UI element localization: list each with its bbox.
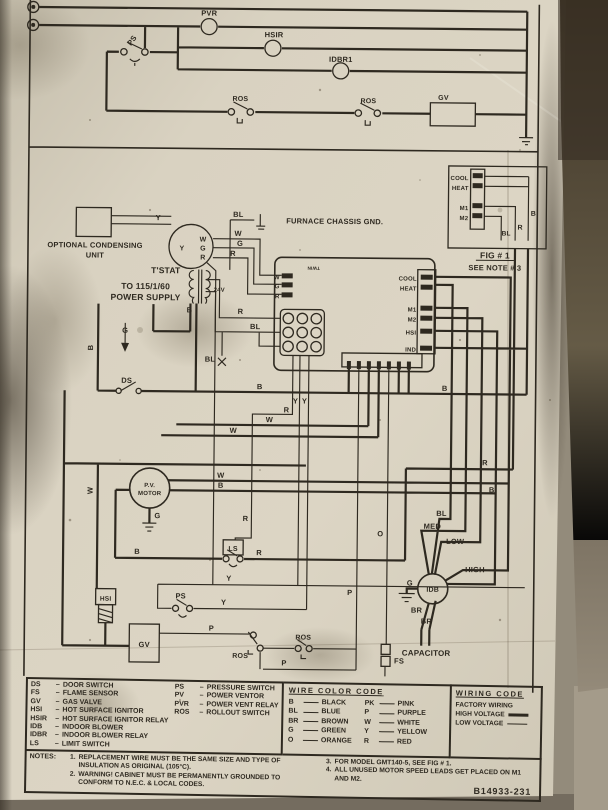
wire-label-r: R <box>256 548 262 557</box>
wire-label-w: W <box>234 229 242 238</box>
gv-top-label: GV <box>438 95 449 102</box>
notes-list-right: 3.FOR MODEL GMT140-5, SEE FIG # 1.4.ALL … <box>319 758 536 787</box>
wire-label-br: BR <box>421 617 433 626</box>
wire-label-p: P <box>209 624 214 633</box>
legend-and-notes-block: DS–DOOR SWITCHFS–FLAME SENSORGV–GAS VALV… <box>24 677 543 802</box>
wire-label-g: G <box>407 579 413 588</box>
power-supply-label-1: TO 115/1/60 <box>121 281 170 291</box>
board-r-terminal: R <box>275 294 280 300</box>
wire-label-r: R <box>238 307 244 316</box>
wire-label-bl: BL <box>436 509 447 518</box>
abbreviation-column-1: DS–DOOR SWITCHFS–FLAME SENSORGV–GAS VALV… <box>30 681 175 751</box>
wire-label-br: BR <box>411 606 423 615</box>
wire-label-bl: BL <box>233 210 244 219</box>
fs-label: FS <box>394 656 404 665</box>
wiring-code-title: WIRING CODE <box>456 689 537 699</box>
fig1-cool-label: COOL <box>451 176 469 182</box>
gv-bottom-label: GV <box>139 640 150 649</box>
ds-label: DS <box>121 376 132 385</box>
legend-entry: ROS–ROLLOUT SWITCH <box>174 709 278 719</box>
wire-color-entry: OORANGE <box>288 735 364 746</box>
tstat-y-terminal: Y <box>180 245 185 252</box>
fig1-note: SEE NOTE # 3 <box>468 263 521 273</box>
wire-label-r: R <box>482 458 488 467</box>
wiring-code-box: WIRING CODE FACTORY WIRING HIGH VOLTAGE … <box>451 684 543 760</box>
tstat-label: T'STAT <box>151 265 181 275</box>
wire-label-bl: BL <box>250 322 261 331</box>
notes-list-left: 1.REPLACEMENT WIRE MUST BE THE SAME SIZE… <box>63 754 314 794</box>
wire-label-g: G <box>122 326 128 335</box>
pv-motor-label-2: MOTOR <box>138 491 162 497</box>
wire-label-y: Y <box>156 213 161 222</box>
high-speed-label: HIGH <box>465 565 485 574</box>
wire-label-w: W <box>230 426 238 435</box>
legend-entry: LS–LIMIT SWITCH <box>30 740 174 751</box>
wire-label-b: B <box>86 344 95 350</box>
capacitor-label: CAPACITOR <box>402 649 451 658</box>
wire-label-w: W <box>217 471 225 480</box>
wire-label-p: P <box>347 588 352 597</box>
board-w-terminal: W <box>274 275 280 281</box>
high-voltage-line-sample <box>509 713 529 716</box>
ros-top2-label: ROS <box>360 98 376 105</box>
notes-box: NOTES: 1.REPLACEMENT WIRE MUST BE THE SA… <box>24 751 542 802</box>
power-supply-label-2: POWER SUPPLY <box>110 292 180 303</box>
tstat-w-terminal: W <box>200 237 207 244</box>
fig1-r-wire-label: R <box>518 225 523 232</box>
wire-color-column-1: BBLACKBLBLUEBRBROWNGGREENOORANGE <box>288 698 365 746</box>
wire-label-y: Y <box>221 598 226 607</box>
wire-label-b: B <box>187 305 193 314</box>
tstat-r-terminal: R <box>200 255 205 262</box>
ps-bottom-label: PS <box>175 591 185 600</box>
wire-label-o: O <box>377 529 383 538</box>
abbreviation-legend: DS–DOOR SWITCHFS–FLAME SENSORGV–GAS VALV… <box>25 677 284 755</box>
wire-label-r: R <box>230 249 236 258</box>
wall-bottom-right <box>574 686 608 810</box>
twin-label: TWIN <box>307 266 320 271</box>
board-g-terminal: G <box>275 284 280 290</box>
idb-label: IDB <box>426 587 439 594</box>
hsi-label: HSI <box>100 596 112 603</box>
ros-top1-label: ROS <box>233 96 249 103</box>
optional-unit-label-1: OPTIONAL CONDENSING <box>47 240 142 250</box>
wire-color-entry: RRED <box>364 737 444 748</box>
notes-right: 3.FOR MODEL GMT140-5, SEE FIG # 1.4.ALL … <box>316 756 540 800</box>
wire-color-column-2: PKPINKPPURPLEWWHITEYYELLOWRRED <box>364 699 445 747</box>
transformer-label: 24V <box>214 288 225 294</box>
wire-label-g: G <box>237 239 243 248</box>
low-speed-label: LOW <box>446 537 465 546</box>
left-edge-shadow <box>0 0 12 810</box>
wire-color-code-title: WIRE COLOR CODE <box>289 686 445 698</box>
board-heat-terminal: HEAT <box>400 286 417 292</box>
wire-label-b: B <box>442 384 448 393</box>
wire-label-y: Y <box>293 396 298 405</box>
wire-label-b: B <box>257 382 263 391</box>
board-ind-terminal: IND <box>405 348 416 354</box>
note-item: 4.ALL UNUSED MOTOR SPEED LEADS GET PLACE… <box>319 767 536 788</box>
fig1-heat-label: HEAT <box>452 186 469 192</box>
wire-label-w: W <box>86 486 95 494</box>
dark-streak-top <box>558 0 608 160</box>
tstat-g-terminal: G <box>200 246 206 253</box>
notes-left: NOTES: 1.REPLACEMENT WIRE MUST BE THE SA… <box>26 751 317 796</box>
wire-label-p: P <box>281 658 286 667</box>
fig1-m1-label: M1 <box>460 206 469 212</box>
wire-label-b: B <box>489 485 495 494</box>
wire-label-b: B <box>218 481 224 490</box>
hsir-label: HSIR <box>265 30 284 39</box>
wire-label-b: B <box>134 547 140 556</box>
low-voltage-label: LOW VOLTAGE <box>455 718 503 728</box>
idbr1-label: IDBR1 <box>329 55 353 64</box>
wire-label-y: Y <box>226 574 231 583</box>
wire-label-r: R <box>284 405 290 414</box>
chassis-gnd-label: FURNACE CHASSIS GND. <box>286 216 383 226</box>
wire-label-r: R <box>243 514 249 523</box>
ros-bottom1-label: ROS <box>232 653 248 660</box>
board-hsi-terminal: HSI <box>406 331 417 337</box>
med-speed-label: MED <box>424 522 442 531</box>
low-voltage-line-sample <box>507 723 527 724</box>
wire-label-g: G <box>154 511 160 520</box>
notes-heading: NOTES: <box>29 753 64 790</box>
wire-label-bl: BL <box>205 355 216 364</box>
wire-color-code-box: WIRE COLOR CODE BBLACKBLBLUEBRBROWNGGREE… <box>283 682 452 759</box>
fig1-caption: FIG # 1 <box>480 250 510 260</box>
wire-label-w: W <box>266 415 274 424</box>
fig1-b-wire-label: B <box>531 211 536 218</box>
board-m2-terminal: M2 <box>408 318 417 324</box>
fig1-m2-label: M2 <box>460 216 469 222</box>
pv-motor-label-1: P.V. <box>144 483 155 489</box>
part-number: B14933-231 <box>473 786 531 797</box>
fig1-bl-wire-label: BL <box>502 230 511 237</box>
board-cool-terminal: COOL <box>399 276 417 282</box>
capacitor: CAPACITOR <box>402 649 451 658</box>
note-item: 2.WARNING! CABINET MUST BE PERMANENTLY G… <box>63 770 313 791</box>
photo-of-furnace-wiring-diagram: PVR HSIR IDBR1 PS ROS ROS GV COOL HEAT M… <box>0 0 608 810</box>
abbreviation-column-2: PS–PRESSURE SWITCHPV–POWER VENTORPVR–POW… <box>174 684 279 753</box>
pvr-label: PVR <box>201 9 217 18</box>
wire-label-y: Y <box>302 397 307 406</box>
optional-unit-label-2: UNIT <box>86 250 105 259</box>
board-m1-terminal: M1 <box>408 308 417 314</box>
